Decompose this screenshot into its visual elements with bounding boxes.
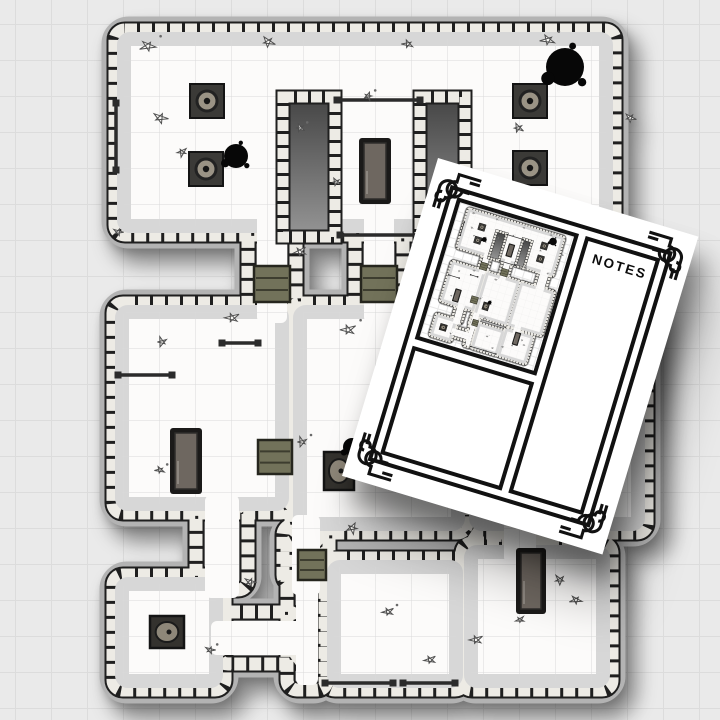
map-thumbnail	[420, 202, 574, 370]
notes-title: NOTES	[590, 251, 653, 283]
scene: NOTES	[0, 0, 720, 720]
